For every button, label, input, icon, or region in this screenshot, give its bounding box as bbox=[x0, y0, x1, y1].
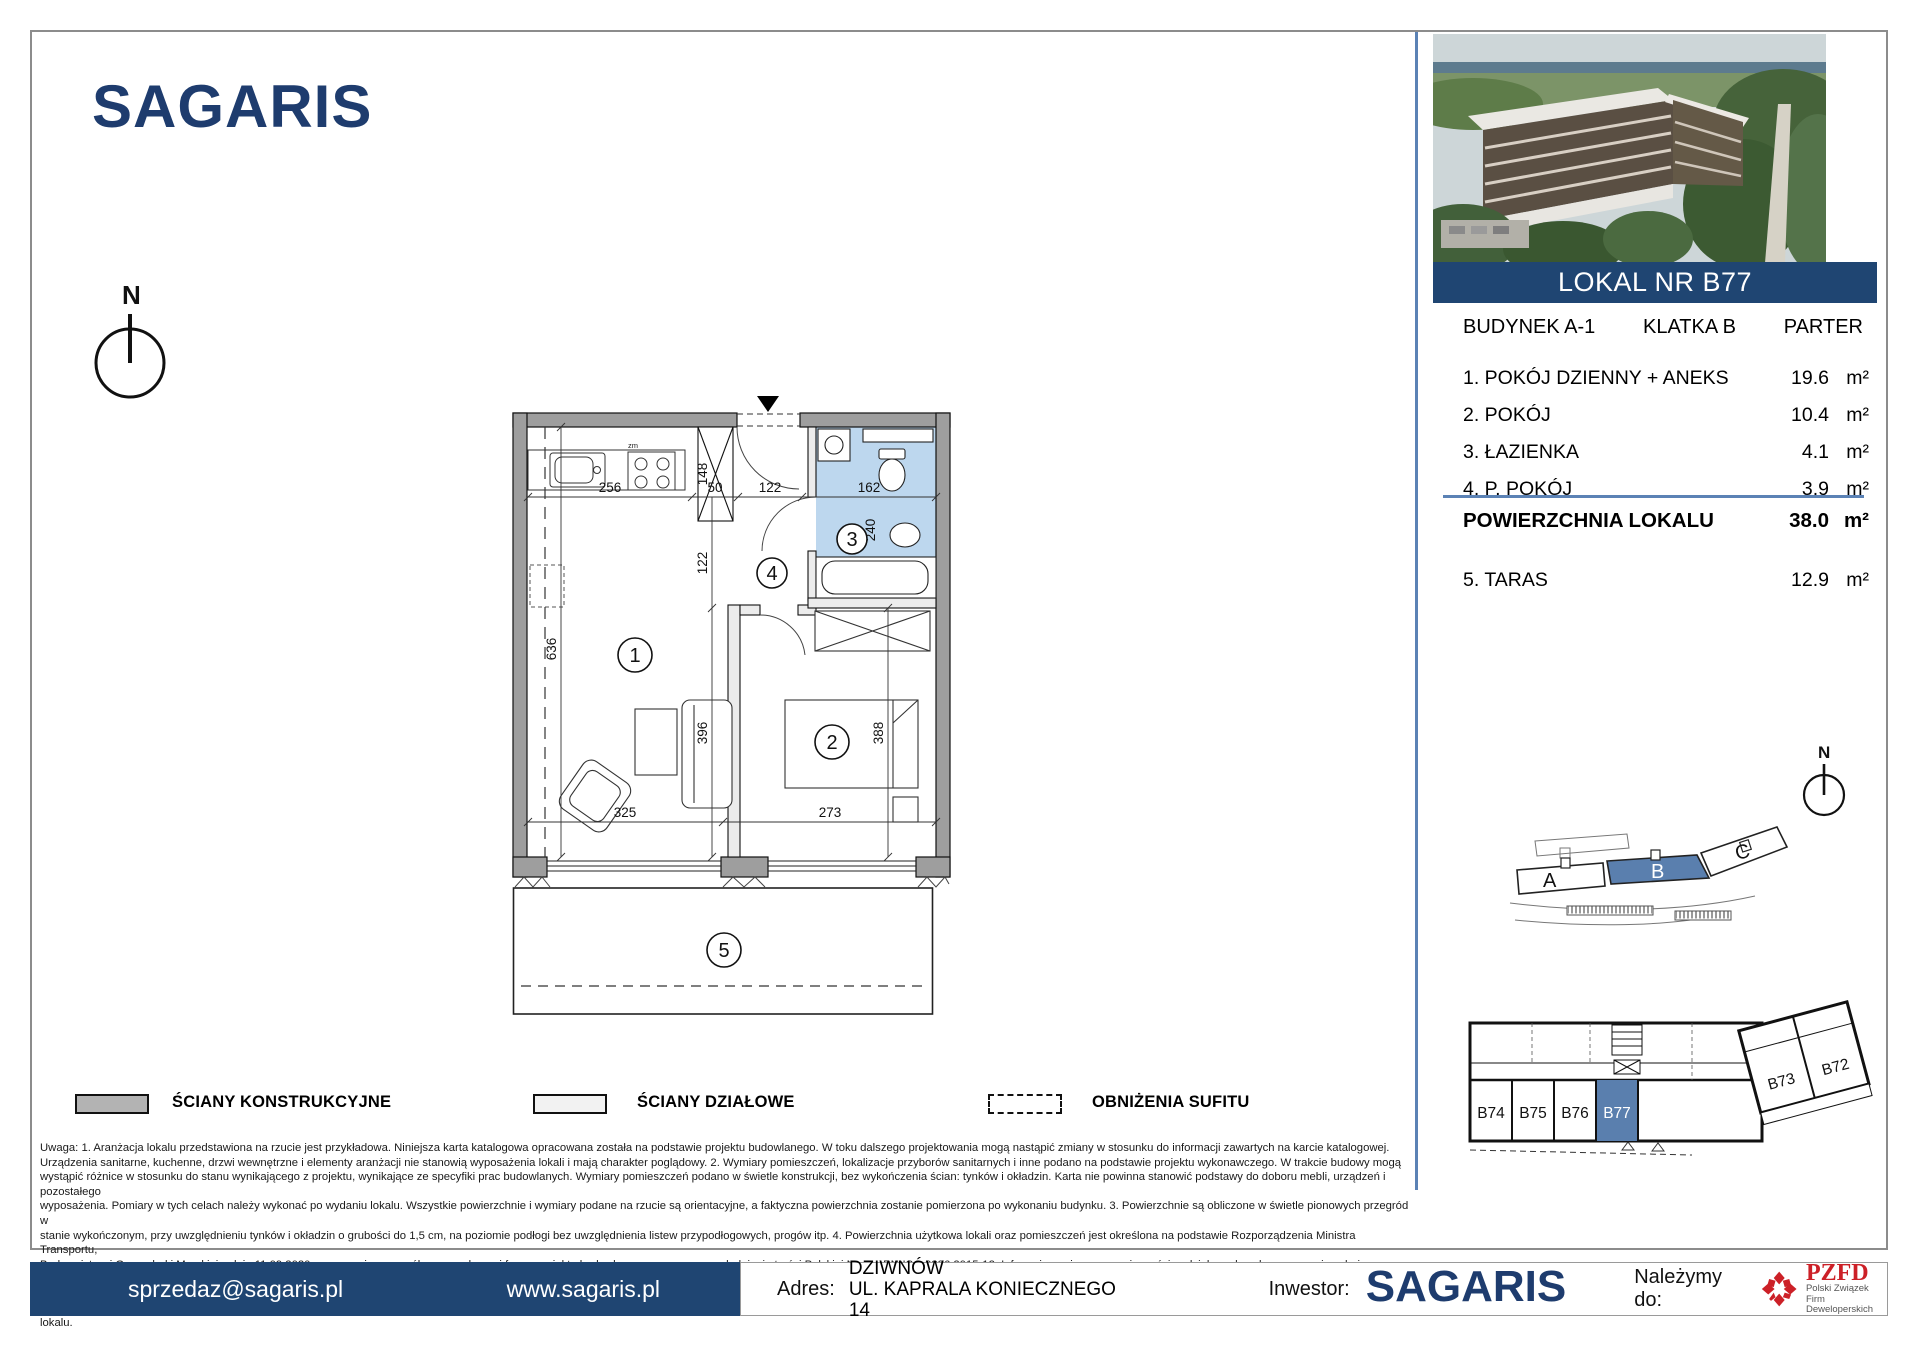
svg-text:N: N bbox=[122, 280, 141, 310]
pzfd-flower-icon bbox=[1760, 1268, 1798, 1310]
coffee-table bbox=[635, 709, 677, 775]
entrance-arrow-icon bbox=[757, 396, 779, 412]
svg-text:396: 396 bbox=[695, 722, 710, 745]
building-label: BUDYNEK A-1 bbox=[1463, 316, 1595, 339]
room-row: 2. POKÓJ 10.4 m² bbox=[1433, 397, 1877, 434]
terrace-area: 12.9 bbox=[1771, 569, 1829, 592]
bedside-table bbox=[893, 797, 918, 822]
svg-text:B75: B75 bbox=[1519, 1105, 1547, 1122]
room-area-unit: m² bbox=[1829, 367, 1869, 390]
unit-location-row: BUDYNEK A-1 KLATKA B PARTER bbox=[1433, 316, 1877, 339]
svg-text:2: 2 bbox=[826, 732, 837, 754]
svg-text:3: 3 bbox=[846, 529, 857, 551]
note-line: wystąpić różnice w stosunku do stanu wyn… bbox=[40, 1170, 1412, 1199]
staircase-label: KLATKA B bbox=[1643, 316, 1736, 339]
fridge-outline bbox=[530, 565, 564, 607]
legend-swatch-construction-walls bbox=[75, 1094, 149, 1114]
unit-banner: LOKAL NR B77 bbox=[1433, 262, 1877, 303]
room-name: 1. POKÓJ DZIENNY + ANEKS bbox=[1463, 367, 1771, 390]
wall-hatch bbox=[515, 877, 949, 887]
site-plan: A B C bbox=[1505, 808, 1817, 936]
legend-label-partition-walls: ŚCIANY DZIAŁOWE bbox=[637, 1093, 795, 1112]
building-render-photo bbox=[1433, 34, 1826, 263]
address-city: DZIWNÓW bbox=[849, 1258, 1119, 1279]
building-a-label: A bbox=[1543, 870, 1557, 892]
legend-swatch-partition-walls bbox=[533, 1094, 607, 1114]
floor-strip-right-wing: B73 B72 bbox=[1739, 1002, 1872, 1125]
building-b-label: B bbox=[1651, 861, 1664, 883]
investor-label: Inwestor: bbox=[1269, 1278, 1350, 1301]
room-area: 10.4 bbox=[1771, 404, 1829, 427]
member-label: Należymy do: bbox=[1634, 1266, 1745, 1312]
footer-contact-strip: sprzedaz@sagaris.pl www.sagaris.pl bbox=[30, 1262, 740, 1316]
pzfd-subtitle-2: Firm Deweloperskich bbox=[1806, 1295, 1887, 1316]
svg-text:122: 122 bbox=[695, 552, 710, 575]
svg-text:B76: B76 bbox=[1561, 1105, 1589, 1122]
svg-text:148: 148 bbox=[695, 463, 710, 486]
svg-text:122: 122 bbox=[759, 480, 782, 495]
svg-text:636: 636 bbox=[544, 638, 559, 661]
room-name: 3. ŁAZIENKA bbox=[1463, 441, 1771, 464]
legend-label-ceiling-drops: OBNIŻENIA SUFITU bbox=[1092, 1093, 1250, 1112]
room-area: 4.1 bbox=[1771, 441, 1829, 464]
toilet-tank bbox=[879, 449, 905, 459]
total-area-unit: m² bbox=[1829, 509, 1869, 533]
svg-text:B74: B74 bbox=[1477, 1105, 1505, 1122]
room-row: 3. ŁAZIENKA 4.1 m² bbox=[1433, 434, 1877, 471]
pzfd-logo: PZFD Polski Związek Firm Deweloperskich bbox=[1760, 1262, 1887, 1316]
address-label: Adres: bbox=[777, 1278, 835, 1301]
svg-text:B77: B77 bbox=[1603, 1105, 1631, 1122]
pzfd-text: PZFD Polski Związek Firm Deweloperskich bbox=[1806, 1262, 1887, 1316]
svg-text:256: 256 bbox=[599, 480, 622, 495]
note-line: wyposażenia. Pomiary w tych celach należ… bbox=[40, 1199, 1412, 1228]
legend-label-construction-walls: ŚCIANY KONSTRUKCYJNE bbox=[172, 1093, 391, 1112]
bathroom-door-arc bbox=[762, 497, 816, 551]
bedroom-door-arc bbox=[760, 615, 805, 655]
note-line: Urządzenia sanitarne, kuchenne, drzwi we… bbox=[40, 1156, 1412, 1171]
unit-banner-title: LOKAL NR B77 bbox=[1558, 267, 1752, 298]
north-compass-icon: N bbox=[92, 278, 192, 408]
address-value: DZIWNÓW UL. KAPRALA KONIECZNEGO 14 bbox=[849, 1258, 1119, 1321]
entrance-door bbox=[737, 396, 800, 489]
note-line: Uwaga: 1. Aranżacja lokalu przedstawiona… bbox=[40, 1141, 1412, 1156]
svg-text:325: 325 bbox=[614, 805, 637, 820]
terrace-row: 5. TARAS 12.9 m² bbox=[1433, 562, 1877, 599]
apartment-floor-plan: zm bbox=[495, 393, 965, 1048]
sofa bbox=[682, 700, 732, 808]
room-area-unit: m² bbox=[1829, 441, 1869, 464]
room-area-unit: m² bbox=[1829, 404, 1869, 427]
footer-website-link[interactable]: www.sagaris.pl bbox=[507, 1276, 660, 1303]
panel-divider-line bbox=[1415, 32, 1418, 1190]
bath-cabinet bbox=[863, 429, 933, 442]
floor-label: PARTER bbox=[1784, 316, 1863, 339]
address-street: UL. KAPRALA KONIECZNEGO 14 bbox=[849, 1279, 1119, 1321]
bedroom-furniture bbox=[785, 611, 930, 822]
terrace-area-unit: m² bbox=[1829, 569, 1869, 592]
footer-bar: sprzedaz@sagaris.pl www.sagaris.pl Adres… bbox=[30, 1262, 1888, 1316]
footer-info-strip: Adres: DZIWNÓW UL. KAPRALA KONIECZNEGO 1… bbox=[740, 1262, 1888, 1316]
svg-text:162: 162 bbox=[858, 480, 881, 495]
terrace-name: 5. TARAS bbox=[1463, 569, 1771, 592]
investor-sagaris-logo: SAGARIS bbox=[1366, 1262, 1566, 1312]
room-area: 19.6 bbox=[1771, 367, 1829, 390]
svg-text:1: 1 bbox=[629, 645, 640, 667]
living-furniture bbox=[555, 700, 732, 836]
svg-text:388: 388 bbox=[871, 722, 886, 745]
stove-label: zm bbox=[628, 441, 638, 450]
sagaris-logo: SAGARIS bbox=[92, 72, 372, 141]
washbasin bbox=[890, 523, 920, 547]
toilet-bowl bbox=[879, 459, 905, 491]
total-area-row: POWIERZCHNIA LOKALU 38.0 m² bbox=[1433, 502, 1877, 539]
total-divider-line bbox=[1443, 495, 1864, 498]
pzfd-abbr: PZFD bbox=[1806, 1262, 1887, 1284]
floor-level-plan: B74 B75 B76 B77 B73 B72 bbox=[1462, 998, 1894, 1163]
note-line: lokalu. bbox=[40, 1316, 1412, 1331]
svg-text:N: N bbox=[1818, 743, 1830, 762]
bed bbox=[785, 700, 918, 788]
svg-text:5: 5 bbox=[718, 940, 729, 962]
footer-email-link[interactable]: sprzedaz@sagaris.pl bbox=[128, 1276, 343, 1303]
catalog-card-page: SAGARIS N bbox=[0, 0, 1920, 1356]
room-name: 2. POKÓJ bbox=[1463, 404, 1771, 427]
room-row: 1. POKÓJ DZIENNY + ANEKS 19.6 m² bbox=[1433, 360, 1877, 397]
legend-swatch-ceiling-drops bbox=[988, 1094, 1062, 1114]
svg-text:4: 4 bbox=[766, 563, 777, 585]
note-line: stanie wykończonym, przy uwzględnieniu t… bbox=[40, 1229, 1412, 1258]
svg-text:273: 273 bbox=[819, 805, 842, 820]
total-area-label: POWIERZCHNIA LOKALU bbox=[1463, 509, 1771, 533]
total-area-value: 38.0 bbox=[1771, 509, 1829, 533]
